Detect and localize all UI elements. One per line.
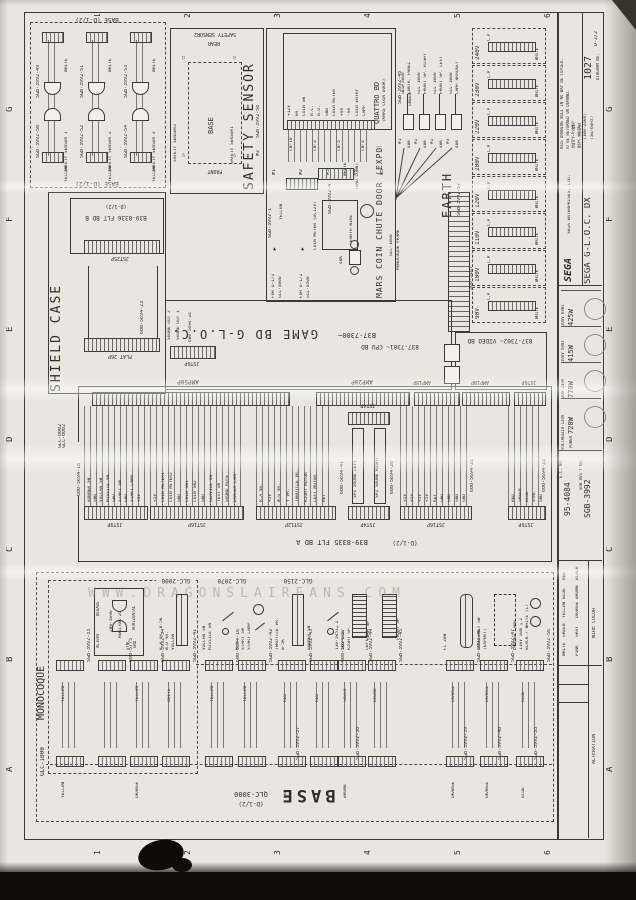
ec-label: E.C. No.: [559, 454, 563, 478]
signal-label: GND: [202, 428, 207, 502]
wire-color-header: WIRE COLOR: [592, 574, 597, 638]
tap-connector: [488, 264, 536, 274]
part-number: GLC-0002: [62, 404, 67, 448]
wire-color-label: WHITE: [535, 255, 539, 282]
signal-label: GND: [125, 428, 130, 502]
connector-label: JST12P: [264, 521, 324, 526]
signal-label: +5V: [138, 428, 143, 502]
device-wires: [62, 682, 77, 748]
voltage-label: 90V: [475, 291, 481, 319]
quattro-pin-label: N.C.: [311, 38, 316, 116]
wire-color-label: WHITE: [535, 70, 539, 97]
part-number: GLC-1000: [40, 726, 46, 776]
wire-color-label: WHITE: [535, 292, 539, 319]
connector: [130, 32, 152, 43]
voltage-tap-cell: 100V C.P WHITE: [472, 250, 546, 286]
junction-connector: [368, 660, 396, 671]
signal-label: +5V: [269, 428, 274, 502]
signal-label: COIN METER1: [162, 428, 167, 502]
signal-label: GND: [178, 428, 183, 502]
part-number: SGB-3992-39: [464, 704, 469, 760]
base-connector: [446, 756, 474, 767]
device-glyph-icon: [144, 594, 158, 644]
safety-sensor-cable-column: WHITE SGB-3992-49 SAFETY SENSOR 1 SGB-39…: [36, 24, 78, 186]
jst6p-connector: [170, 346, 216, 359]
cable-number: 600-5694-18: [77, 442, 82, 496]
signal-label: GND: [113, 428, 118, 502]
base-connector: [56, 756, 84, 767]
connector: [42, 152, 64, 163]
power-value: 720W: [568, 400, 575, 434]
voltage-tap-cell: 240V C.P WHITE: [472, 28, 546, 64]
cable-wires: [92, 40, 101, 156]
voltage-tap-cell: 110V C.P WHITE: [472, 213, 546, 249]
cable-wires: [48, 40, 57, 156]
sensor3-label: SAFETY SENSOR3: [174, 70, 179, 162]
cpu-bd-label: 837-7301~ CPU BD: [340, 343, 440, 349]
signal-label: RIGHT MOTOR: [305, 428, 310, 502]
flt-bd-a-label: B39-8335 FLT BD A: [282, 538, 382, 545]
diagram-no-label: DIAGRAM No.: [596, 48, 600, 80]
amp18p-strip: [462, 392, 510, 406]
voltage-value: 100V 60Hz: [561, 293, 565, 326]
wire-color-entry: BLACK: [576, 562, 581, 580]
signal-label: SYNC: [533, 428, 538, 502]
wire-color-entry: BLUE: [563, 581, 568, 599]
drawing-title: SEGA G-L.O.C. DX: [584, 142, 593, 284]
quattro-pin-label: -Ve: [348, 38, 353, 116]
device-column: EMERGENCY SW (EXPORT) SGB-3992-47 ORANGE…: [478, 588, 518, 800]
signal-label: +5V: [419, 428, 424, 502]
power-value: 425W: [568, 292, 575, 326]
earth-source: GLC-1000: [390, 200, 395, 256]
quattro-pin-label: COIN ENTRY: [356, 38, 361, 116]
signal-label: BURNER SW: [88, 428, 93, 502]
arrow-up-icon: ▲: [273, 246, 276, 252]
part-number: SGB-3992-1: [268, 182, 273, 238]
arrow-up-icon: ▲: [301, 246, 304, 252]
device-wires: [104, 682, 119, 748]
grid-col-label-top: 5: [454, 4, 462, 18]
scanned-wiring-diagram-sheet: 123456 123456 GFEDCBA GFEDCBA BASE (D-1/…: [0, 0, 636, 900]
rear-label: REAR: [200, 40, 228, 45]
wire: [455, 94, 456, 114]
divider: [558, 665, 602, 666]
ec-number: 95-4084: [564, 456, 572, 516]
base-connector: [480, 756, 508, 767]
grid-col-label-top: 6: [544, 4, 552, 18]
device-glyph-icon: [292, 594, 304, 646]
wire-color-label: YELLOW: [109, 148, 114, 182]
base-title: BASE: [272, 786, 342, 803]
approval-stamp-icon: [584, 298, 606, 320]
sound-out-label: SOUND OUT 2: [168, 296, 173, 340]
tap-connector: [488, 227, 536, 237]
amp-connector-label: AMP18P: [456, 379, 504, 384]
signal-label: LEFT MOTOR: [314, 428, 319, 502]
base-ref: (D-1/2): [234, 800, 268, 806]
earth-tag: #2: [299, 163, 304, 175]
right-edge-shadow: [604, 0, 636, 884]
sensor-mark-icon: △: [182, 152, 185, 158]
for-part: GLC-0500: [307, 254, 312, 298]
signal-label: GND: [463, 428, 468, 502]
quattro-pin-label: GND: [326, 38, 331, 116]
connector-label: JST25P: [98, 255, 142, 260]
board-link-connector: [444, 344, 460, 362]
base-connector: [205, 756, 233, 767]
amp-connector-label: AMP18P: [402, 379, 442, 384]
scanner-bed: [0, 872, 636, 900]
signal-label: DANGER LAMP: [234, 428, 239, 502]
sensor-symbol: [132, 82, 149, 95]
quattro-pin-label: LAMP: [363, 38, 368, 116]
for-part: GLC-4000: [279, 254, 284, 298]
safety-sensor-cable-column: WHITE SGB-3992-53 SAFETY SENSOR 3 SGB-39…: [124, 24, 166, 186]
junction-connector: [98, 660, 126, 671]
voltage-header: VOLTAGE: [561, 430, 565, 450]
wire-color-entry: PINK: [576, 638, 581, 656]
for-label: FOR D-1/2: [300, 254, 305, 298]
earth-dest: GLC-1000: [434, 28, 439, 94]
grid-col-label-bottom: 5: [454, 841, 462, 855]
wire-color-label: BROWN: [344, 768, 349, 798]
base-connector: [162, 756, 190, 767]
wire-color-entry: ORANGE: [576, 600, 581, 618]
left-edge-shadow: [0, 0, 8, 900]
ring-terminal-icon: [360, 204, 374, 218]
jst6p-connector: [508, 506, 546, 520]
wire-color-entry: BROWN: [576, 581, 581, 599]
device-wires: [136, 682, 151, 748]
return-notice: TO BE RETURNED ON DEMAND.: [566, 26, 570, 150]
grid-col-label-bottom: 2: [184, 841, 192, 855]
rating-row: 110-120V 720W: [561, 398, 601, 435]
connector: [286, 178, 318, 190]
amp-connector-label: AMP50P: [160, 378, 216, 384]
voltage-tap-cell: 90V C.P WHITE: [472, 287, 546, 323]
game-bd-title: GAME BD G-L.O.C.: [192, 328, 318, 340]
grid-col-label-bottom: 6: [544, 841, 552, 855]
divider: [588, 560, 589, 838]
part-number: SGB-3992-41: [193, 600, 198, 662]
wire-color-label: YELLOW: [280, 192, 285, 220]
quattro-bd-subtitle: (MARS COIN DOOR): [383, 42, 388, 122]
wire-color-label: ORANGE: [486, 768, 491, 798]
connector-label: JST4P: [350, 521, 386, 526]
device-glyph-icon: [530, 594, 544, 644]
part-number: SGB-3992-55: [534, 704, 539, 760]
cable-number: 600-5694-24: [189, 294, 194, 342]
cp-label: C.P: [487, 289, 491, 300]
grid-col-label-top: 3: [274, 4, 282, 18]
wire-color-entry: WHITE: [563, 638, 568, 656]
sensor-symbol: [88, 82, 105, 95]
tap-connector: [488, 301, 536, 311]
game-bd-rev: B37-7300~: [326, 331, 388, 338]
grid-col-label-bottom: 3: [274, 841, 282, 855]
quattro-pin-strip: [287, 120, 375, 130]
device-label: FL 20W: [444, 592, 449, 650]
wire-color-entry: GRAY: [576, 619, 581, 637]
device-label: BLACK / WHITE (L): [526, 592, 531, 650]
cp-label: C.P: [487, 141, 491, 152]
base-connector: [130, 756, 158, 767]
wire-color-label: WHITE: [344, 146, 349, 176]
sensor-symbol: [88, 108, 105, 121]
jst4p-connector: [348, 506, 390, 520]
sensor-mark-icon: ○: [233, 55, 236, 61]
sound-right-label: SP2 SOUND RIGHT: [376, 432, 381, 498]
signal-label: KEY: [434, 428, 439, 502]
sheet-number: 1027: [584, 44, 594, 80]
part-number: SGB-3992-56: [547, 600, 552, 662]
connector: [318, 168, 354, 180]
quattro-pin-label: N.O.: [318, 38, 323, 116]
safety-sensor-cable-column: WHITE SGB-3992-51 SAFETY SENSOR 2 SGB-39…: [80, 24, 122, 186]
device-label: EMERGENCY SW: [478, 592, 483, 650]
part-number: SGB-3992-42: [269, 600, 274, 662]
signal-label: COIN SW1: [186, 428, 191, 502]
connector-label: JST16P: [162, 521, 232, 526]
ring-terminal-icon: [350, 240, 359, 249]
voltage-tap-cell: 230V C.P WHITE: [472, 65, 546, 101]
device-column: N.O. START SW START LAMP SGB-3992-42 YEL…: [236, 588, 276, 800]
divider: [558, 450, 602, 451]
wire: [439, 94, 440, 114]
connector-label: JST6P: [176, 360, 208, 365]
divider: [558, 285, 602, 286]
coin-meter-label: COIN METER (DC12V): [314, 196, 319, 250]
cable-number: 600-5694-21: [470, 440, 475, 492]
jst25p-connector: [84, 240, 160, 254]
connector: [130, 152, 152, 163]
voltage-label: 110V: [475, 217, 481, 245]
part-number: SGB-3992-58: [256, 84, 261, 138]
wire-color-label: WHITE: [535, 107, 539, 134]
top-edge-shadow: [0, 0, 636, 6]
freq-subtitle: (50/60Hz): [591, 100, 596, 140]
connector: [42, 32, 64, 43]
sega-logo: SEGA: [564, 236, 574, 282]
signal-label: START SW: [119, 428, 124, 502]
junction-connector: [162, 660, 190, 671]
earth-dest-detail: LAMP BRACKET: [456, 28, 461, 94]
sensor-symbol: [132, 108, 149, 121]
cp-label: C.P: [487, 30, 491, 41]
jst4p-connector: [348, 412, 390, 425]
wire-color-label: YELLOW: [62, 768, 67, 798]
earth-dest: GLC-1000: [418, 28, 423, 94]
device-wires: [244, 682, 259, 748]
approval-stamp-icon: [584, 370, 606, 392]
safety-sensor-title: SAFETY SENSOR: [243, 52, 256, 190]
area-label: GLC-2000: [156, 577, 196, 583]
assy-label: SUB ASS'Y No.: [579, 454, 583, 490]
wire-color-label: YELLOW: [153, 148, 158, 182]
cable-number: 600-5694-41: [340, 438, 345, 494]
signal-label: SERVICE SW: [210, 428, 215, 502]
amp50p-strip: [92, 392, 290, 406]
grid-col-label-bottom: 4: [364, 841, 372, 855]
junction-connector: [278, 660, 306, 671]
part-number: SGB-3992-50: [36, 100, 41, 158]
cp-label: C.P: [487, 215, 491, 226]
bd-ref: (D-1/2): [96, 203, 136, 208]
device-column: SGB-3992-33 YELLOW YELLOW: [54, 588, 94, 800]
junction-connector: [56, 660, 84, 671]
company-name: SEGA ENTERPRISES, LTD.: [568, 152, 573, 234]
wire-color-entry: GREEN: [563, 619, 568, 637]
device-glyph-icon: [176, 594, 188, 646]
base-connector: [238, 756, 266, 767]
wire-color-label: WHITE: [65, 26, 70, 72]
part-number: SGB-3992-51: [80, 46, 85, 98]
tap-connector: [488, 79, 536, 89]
signal-label: COIN METER2: [170, 428, 175, 502]
tap-connector: [488, 116, 536, 126]
monocoque-title: MONOCOQUE: [37, 622, 47, 720]
wire-color-label: WHITE: [109, 26, 114, 72]
approval-stamp-icon: [584, 406, 606, 428]
device-column: LEFT SP. FRONT SP SGB-3992-45 BROWN: [366, 588, 406, 800]
voltage-value: 100V 50Hz: [561, 329, 565, 362]
voltage-label: 100V: [475, 254, 481, 282]
wire-color-label: WHITE: [535, 218, 539, 245]
sensor2-label: SAFETY SENSOR2: [184, 31, 246, 36]
signal-label: +5V: [154, 428, 159, 502]
earth-dest-detail: FRONT SP. LEFT: [440, 28, 445, 94]
signal-label: GREEN: [519, 428, 524, 502]
junction-connector: [310, 660, 338, 671]
earth-tag: #1: [272, 163, 277, 175]
divider: [558, 560, 602, 561]
alteration-header: ALTERATION: [592, 692, 597, 764]
device-glyph-icon: [460, 594, 473, 648]
cp-label: C.P: [487, 67, 491, 78]
jst16p-connector: [150, 506, 244, 520]
base-connector: [98, 756, 126, 767]
resistor-value: 40K: [340, 250, 345, 264]
voltage-tap-cell: 220V C.P WHITE: [472, 102, 546, 138]
signal-label: BLUE: [526, 428, 531, 502]
cable-number: 600-5694-22: [542, 438, 547, 492]
connector-label: JST6P: [510, 521, 542, 526]
wire-color-entry: YELLOW: [563, 600, 568, 618]
wire-color-label: WHITE: [535, 144, 539, 171]
signal-label: COIN SW2: [194, 428, 199, 502]
signal-label: +5V: [426, 428, 431, 502]
signal-label: Y VR.: [287, 428, 292, 502]
flat26p-connector: [84, 338, 160, 352]
wire-color-label: YELLOW: [65, 148, 70, 182]
wire-color-entry: RED: [563, 562, 568, 580]
grid-col-label-bottom: 1: [94, 841, 102, 855]
wire: [407, 94, 408, 114]
assy-number: SGB-3992: [584, 456, 592, 518]
sensor-symbol: [44, 82, 61, 95]
part-number: SGB-3992-37: [296, 704, 301, 760]
rating-row: 200-240V 770W: [561, 362, 601, 399]
connector: [86, 32, 108, 43]
device-wires: [316, 682, 331, 748]
wire-color-label: WHITE: [535, 181, 539, 208]
earth-dest-detail: FRONT SP. RIGHT: [424, 28, 429, 94]
notice-jp: 禁ズ 要返却: [578, 28, 583, 148]
voltage-subtitle: (100-240V): [584, 100, 589, 140]
device-column: R.A VR. B-5K W.O VR. VULCAN SGB-3992-41 …: [160, 588, 200, 800]
device-wires: [374, 682, 389, 748]
part-number: SGB-3992-54: [124, 100, 129, 158]
part-number: SGB-3992-33: [87, 600, 92, 662]
base-connector: [516, 756, 544, 767]
alteration-row-line: [558, 702, 588, 703]
wire-color-label: WHITE: [153, 26, 158, 72]
signal-label: MISSILE SW: [107, 428, 112, 502]
junction-connector: [516, 660, 544, 671]
alteration-row-line: [558, 684, 588, 685]
junction-connector: [130, 660, 158, 671]
wire-color-label: ORANGE: [452, 768, 457, 798]
sensor-mark-icon: ○: [182, 55, 185, 61]
device-label: (EXPORT): [484, 592, 489, 650]
earth-tag: #2: [256, 142, 261, 156]
amp18p-strip: [414, 392, 460, 406]
power-value: 770W: [568, 364, 575, 398]
coin-chute-title: MARS COIN CHUTE DOOR (EXPORT): [376, 146, 384, 298]
wire: [423, 94, 424, 114]
base-part: QLC-3000: [230, 790, 272, 797]
device-wires: [211, 682, 226, 748]
jst12p-connector: [256, 506, 336, 520]
part-number: SGB-3992-52: [80, 100, 85, 158]
flat-cable: [88, 266, 158, 338]
device-glyph-icon: [70, 594, 84, 644]
signal-label: GND: [456, 428, 461, 502]
notice-jp: 許可ナク複写: [572, 28, 577, 148]
end-conn-label: (END CONN): [356, 146, 361, 190]
signal-label: GND: [94, 428, 99, 502]
connector-label: JST16P: [408, 521, 464, 526]
junction-connector: [205, 660, 233, 671]
part-number: SGB-3992-49: [36, 46, 41, 98]
base-connector: [278, 756, 306, 767]
part-number: SGB-3992-45: [399, 600, 404, 662]
quattro-pin-label: COIN SW: [303, 38, 308, 116]
tap-connector: [488, 153, 536, 163]
junction-connector: [338, 660, 366, 671]
signal-label: RET: [323, 428, 328, 502]
earth-wire-label: EARTH WIRE: [350, 192, 355, 242]
amp-connector-label: AMP20P: [336, 378, 388, 384]
device-glyph-icon: [252, 594, 266, 644]
signal-label: START LAMP: [131, 428, 136, 502]
wire-color-label: BLUE: [522, 768, 527, 798]
ring-terminal-icon: [350, 266, 359, 275]
grid-col-label-top: 2: [184, 4, 192, 18]
voltage-label: 120V: [475, 180, 481, 208]
base-connector: [338, 756, 366, 767]
signal-label: GND: [448, 428, 453, 502]
device-wires: [168, 682, 183, 748]
earth-source-detail: MONOCOQUE FRAME: [397, 200, 402, 270]
connector-label: JST6P: [512, 379, 546, 384]
wire-color-label: ORANGE: [136, 768, 141, 798]
cable-number: 600-5694-20: [390, 438, 395, 494]
jst16p-connector: [400, 506, 472, 520]
voltage-value: 200-240V: [561, 365, 565, 398]
flt-bd-b-label: B39-8336 FLT BD B: [72, 214, 160, 220]
